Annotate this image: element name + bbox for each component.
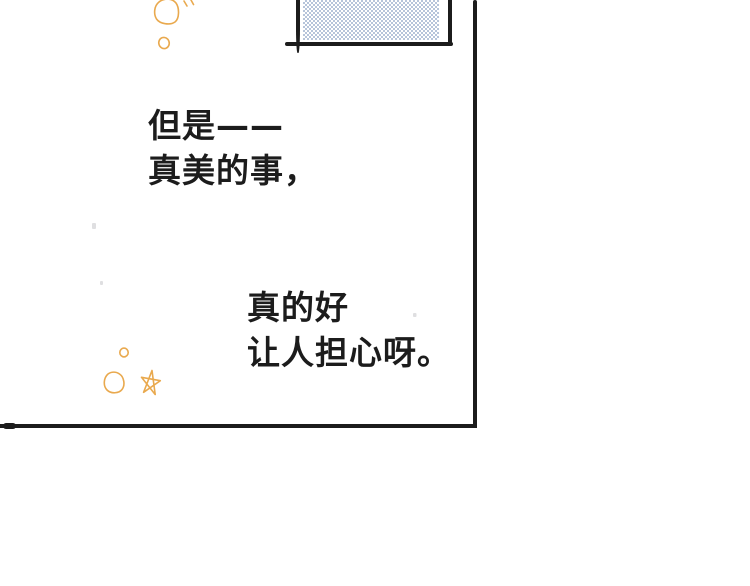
screentone-fill [303,0,439,40]
caption-line: 真的好 [247,285,451,330]
caption-bottom: 真的好 让人担心呀。 [247,285,451,375]
star-doodle-icon [142,371,161,395]
caption-top: 但是—— 真美的事， [148,103,318,193]
panel-border-stroke-blob [3,423,16,429]
tick-marks-icon [184,0,194,6]
comic-panel: 但是—— 真美的事， 真的好 让人担心呀。 [0,0,750,586]
caption-line: 真美的事， [148,148,318,193]
paper-speck [92,223,96,229]
caption-line: 但是—— [148,103,318,148]
caption-line: 让人担心呀。 [247,330,451,375]
small-circle-doodle-icon [120,348,128,357]
large-circle-doodle-icon [155,0,179,24]
ring-circle-doodle-icon [104,372,124,393]
panel-border-right [473,0,477,428]
panel-border-bottom [0,424,477,428]
window-frame-right-stroke [448,0,452,43]
small-circle-doodle-icon [157,36,170,50]
window-frame-bottom-stroke [285,42,453,46]
paper-speck [100,281,103,285]
